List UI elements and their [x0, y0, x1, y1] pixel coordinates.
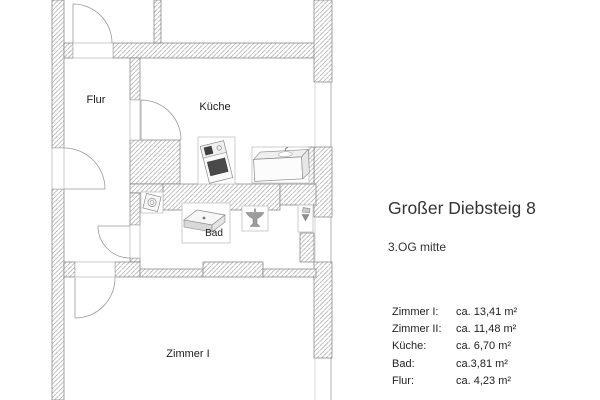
bath-window — [315, 217, 331, 262]
room-name: Küche: — [388, 338, 456, 355]
room-label-bad: Bad — [205, 228, 223, 239]
floorplan-drawing: Flur Küche Bad Zimmer I — [0, 0, 360, 400]
room-label-kueche: Küche — [199, 101, 230, 113]
floorplan-page: Flur Küche Bad Zimmer I Großer Diebsteig… — [0, 0, 600, 400]
room-area-list: Zimmer I: ca. 13,41 m² Zimmer II: ca. 11… — [388, 303, 517, 389]
room-area-row: Bad: ca.3,81 m² — [388, 355, 517, 372]
room-area: ca. 13,41 m² — [456, 303, 517, 320]
room-name: Zimmer II: — [388, 320, 456, 337]
walls — [52, 0, 332, 400]
room-name: Bad: — [388, 355, 456, 372]
room-name: Zimmer I: — [388, 303, 456, 320]
info-panel: Großer Diebsteig 8 3.OG mitte Zimmer I: … — [388, 197, 536, 389]
room1-door-arc — [75, 278, 115, 318]
washing-machine-icon — [143, 193, 161, 211]
door-openings — [52, 43, 140, 277]
room-label-flur: Flur — [87, 94, 106, 106]
room-area-row: Zimmer I: ca. 13,41 m² — [388, 303, 517, 320]
room-area: ca. 4,23 m² — [456, 372, 517, 389]
kitchen-counter-sink-icon — [253, 147, 310, 182]
room-area: ca.3,81 m² — [456, 355, 517, 372]
room-area-row: Küche: ca. 6,70 m² — [388, 338, 517, 355]
kitchen-door-arc — [141, 100, 181, 140]
entry-door-arc — [64, 148, 105, 189]
floor-subtitle: 3.OG mitte — [388, 240, 536, 255]
room-area-row: Flur: ca. 4,23 m² — [388, 372, 517, 389]
room-name: Flur: — [388, 372, 456, 389]
room-label-zimmer1: Zimmer I — [166, 348, 209, 360]
room-area: ca. 6,70 m² — [456, 338, 517, 355]
kitchen-window — [315, 82, 331, 147]
room-area-row: Zimmer II: ca. 11,48 m² — [388, 320, 517, 337]
room-area: ca. 11,48 m² — [456, 320, 517, 337]
address-title: Großer Diebsteig 8 — [388, 197, 536, 219]
bath-door-arc — [98, 226, 130, 258]
top-room-door-arc — [73, 4, 112, 43]
room-window — [315, 358, 331, 400]
